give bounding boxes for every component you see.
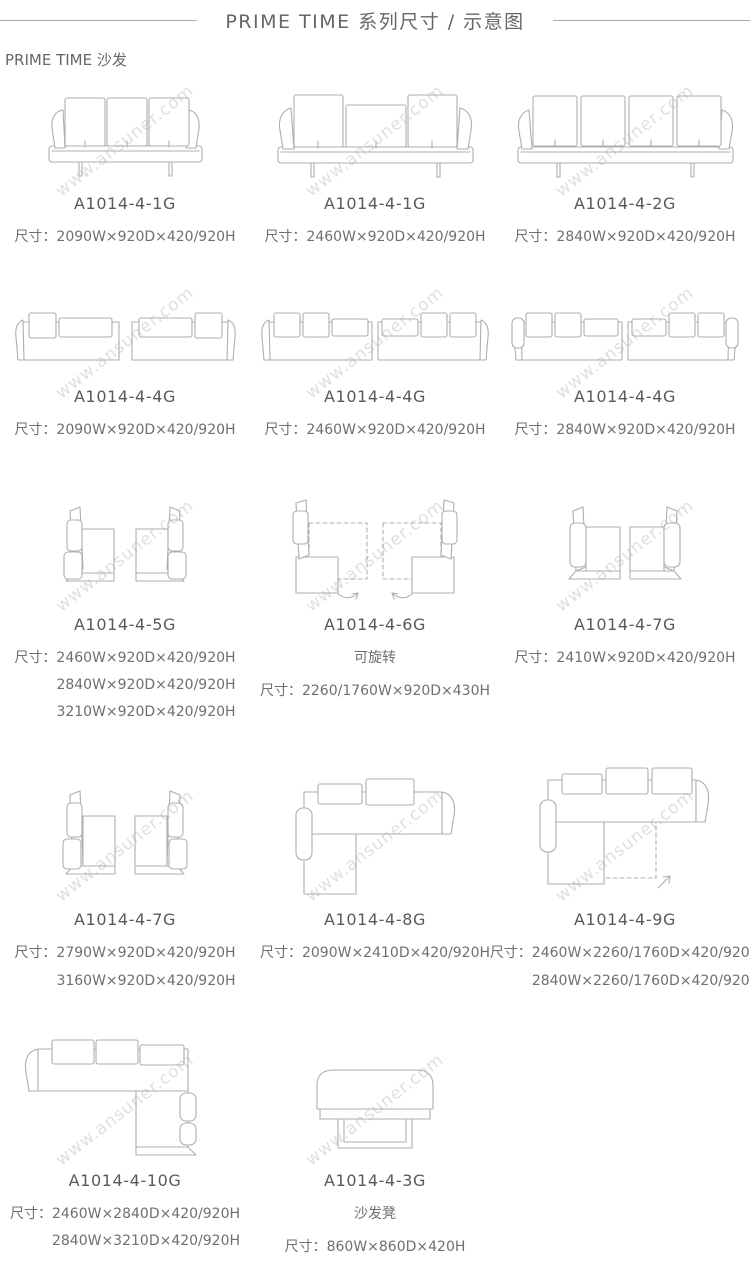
title-rule-right [553, 20, 750, 21]
dimensions: 尺寸：2460W×920D×420/920H [264, 224, 485, 251]
page-title: PRIME TIME 系列尺寸 / 示意图 [225, 7, 524, 34]
page-header: PRIME TIME 系列尺寸 / 示意图 PRIME TIME 沙发 [0, 7, 750, 70]
dimensions: 尺寸：2090W×920D×420/920H [14, 417, 235, 444]
dimensions: 尺寸：2790W×920D×420/920H 3160W×920D×420/92… [14, 940, 235, 995]
dimension-line: 尺寸：2460W×920D×420/920H [264, 224, 485, 251]
dimensions: 尺寸：2460W×2840D×420/920H 2840W×3210D×420/… [10, 1201, 240, 1256]
model-number: A1014-4-6G [324, 615, 426, 634]
product-card: www.ansuner.com A1014-4-7G 尺寸：2410W×920D… [500, 495, 750, 727]
dimension-line: 2840W×920D×420/920H [14, 672, 235, 699]
product-note: 沙发凳 [354, 1203, 396, 1223]
dimensions: 尺寸：2460W×920D×420/920H [264, 417, 485, 444]
product-card: www.ansuner.com A1014-4-7G 尺寸：2790W×920D… [0, 776, 250, 995]
dimension-line: 尺寸：2090W×920D×420/920H [14, 417, 235, 444]
product-note: 可旋转 [354, 647, 396, 667]
model-number: A1014-4-7G [574, 615, 676, 634]
model-number: A1014-4-2G [574, 194, 676, 213]
dimension-line: 3210W×920D×420/920H [14, 699, 235, 726]
product-card: www.ansuner.com A1014-4-8G 尺寸：2090W×2410… [250, 776, 500, 995]
sofa-line-drawing: www.ansuner.com [43, 88, 208, 180]
sofa-line-drawing: www.ansuner.com [10, 776, 240, 896]
model-number: A1014-4-7G [74, 910, 176, 929]
dimensions: 尺寸：2840W×920D×420/920H [514, 417, 735, 444]
sofa-line-drawing: www.ansuner.com [13, 301, 238, 373]
dimensions: 尺寸：2090W×2410D×420/920H [260, 940, 490, 967]
product-card: www.ansuner.com A1014-4-1G 尺寸：2460W×920D… [250, 88, 500, 251]
dimension-line: 尺寸：2090W×2410D×420/920H [260, 940, 490, 967]
dimension-line: 尺寸：2090W×920D×420/920H [14, 224, 235, 251]
sofa-line-drawing: www.ansuner.com [10, 495, 240, 601]
product-card: www.ansuner.com A1014-4-2G 尺寸：2840W×920D… [500, 88, 750, 251]
sofa-line-drawing: www.ansuner.com [513, 88, 738, 180]
title-rule-left [0, 20, 197, 21]
model-number: A1014-4-10G [69, 1171, 182, 1190]
dimension-line: 尺寸：2460W×920D×420/920H [264, 417, 485, 444]
dimensions: 尺寸：2460W×2260/1760D×420/920H 2840W×2260/… [490, 940, 750, 995]
dimension-line: 3160W×920D×420/920H [14, 968, 235, 995]
dimension-line: 尺寸：2260/1760W×920D×430H [260, 678, 490, 705]
dimension-line: 尺寸：2460W×2260/1760D×420/920H [490, 940, 750, 967]
product-card: www.ansuner.com A1014-4-4G 尺寸：2840W×920D… [500, 301, 750, 444]
sofa-line-drawing: www.ansuner.com [510, 776, 740, 896]
sofa-line-drawing: www.ansuner.com [260, 301, 490, 373]
dimensions: 尺寸：2410W×920D×420/920H [514, 645, 735, 672]
dimensions: 尺寸：860W×860D×420H [285, 1234, 466, 1261]
sofa-line-drawing: www.ansuner.com [260, 776, 490, 896]
model-number: A1014-4-1G [324, 194, 426, 213]
dimension-line: 尺寸：860W×860D×420H [285, 1234, 466, 1261]
series-subtitle: PRIME TIME 沙发 [5, 49, 750, 70]
dimension-line: 2840W×2260/1760D×420/920H [490, 968, 750, 995]
dimension-line: 尺寸：2790W×920D×420/920H [14, 940, 235, 967]
model-number: A1014-4-1G [74, 194, 176, 213]
product-card: www.ansuner.com A1014-4-9G 尺寸：2460W×2260… [500, 776, 750, 995]
dimensions: 尺寸：2090W×920D×420/920H [14, 224, 235, 251]
dimension-line: 尺寸：2460W×920D×420/920H [14, 645, 235, 672]
model-number: A1014-4-4G [324, 387, 426, 406]
model-number: A1014-4-4G [574, 387, 676, 406]
title-row: PRIME TIME 系列尺寸 / 示意图 [0, 7, 750, 34]
dimension-line: 尺寸：2410W×920D×420/920H [514, 645, 735, 672]
dimension-line: 2840W×3210D×420/920H [10, 1228, 240, 1255]
product-grid: www.ansuner.com A1014-4-1G 尺寸：2090W×920D… [0, 88, 750, 1261]
sofa-line-drawing: www.ansuner.com [10, 1045, 240, 1157]
empty-grid-cell [500, 1045, 750, 1261]
product-card: www.ansuner.com A1014-4-4G 尺寸：2090W×920D… [0, 301, 250, 444]
sofa-line-drawing: www.ansuner.com [260, 1045, 490, 1157]
model-number: A1014-4-9G [574, 910, 676, 929]
product-card: www.ansuner.com A1014-4-6G 可旋转 尺寸：2260/1… [250, 495, 500, 727]
model-number: A1014-4-8G [324, 910, 426, 929]
product-card: www.ansuner.com A1014-4-10G 尺寸：2460W×284… [0, 1045, 250, 1261]
dimension-line: 尺寸：2840W×920D×420/920H [514, 417, 735, 444]
product-card: www.ansuner.com A1014-4-1G 尺寸：2090W×920D… [0, 88, 250, 251]
model-number: A1014-4-3G [324, 1171, 426, 1190]
product-card: www.ansuner.com A1014-4-3G 沙发凳 尺寸：860W×8… [250, 1045, 500, 1261]
dimensions: 尺寸：2260/1760W×920D×430H [260, 678, 490, 705]
dimension-line: 尺寸：2460W×2840D×420/920H [10, 1201, 240, 1228]
product-card: www.ansuner.com A1014-4-4G 尺寸：2460W×920D… [250, 301, 500, 444]
dimension-line: 尺寸：2840W×920D×420/920H [514, 224, 735, 251]
sofa-line-drawing: www.ansuner.com [273, 88, 478, 180]
model-number: A1014-4-4G [74, 387, 176, 406]
sofa-line-drawing: www.ansuner.com [510, 495, 740, 601]
sofa-line-drawing: www.ansuner.com [510, 301, 740, 373]
dimensions: 尺寸：2840W×920D×420/920H [514, 224, 735, 251]
dimensions: 尺寸：2460W×920D×420/920H 2840W×920D×420/92… [14, 645, 235, 727]
product-card: www.ansuner.com A1014-4-5G 尺寸：2460W×920D… [0, 495, 250, 727]
model-number: A1014-4-5G [74, 615, 176, 634]
sofa-line-drawing: www.ansuner.com [260, 495, 490, 601]
